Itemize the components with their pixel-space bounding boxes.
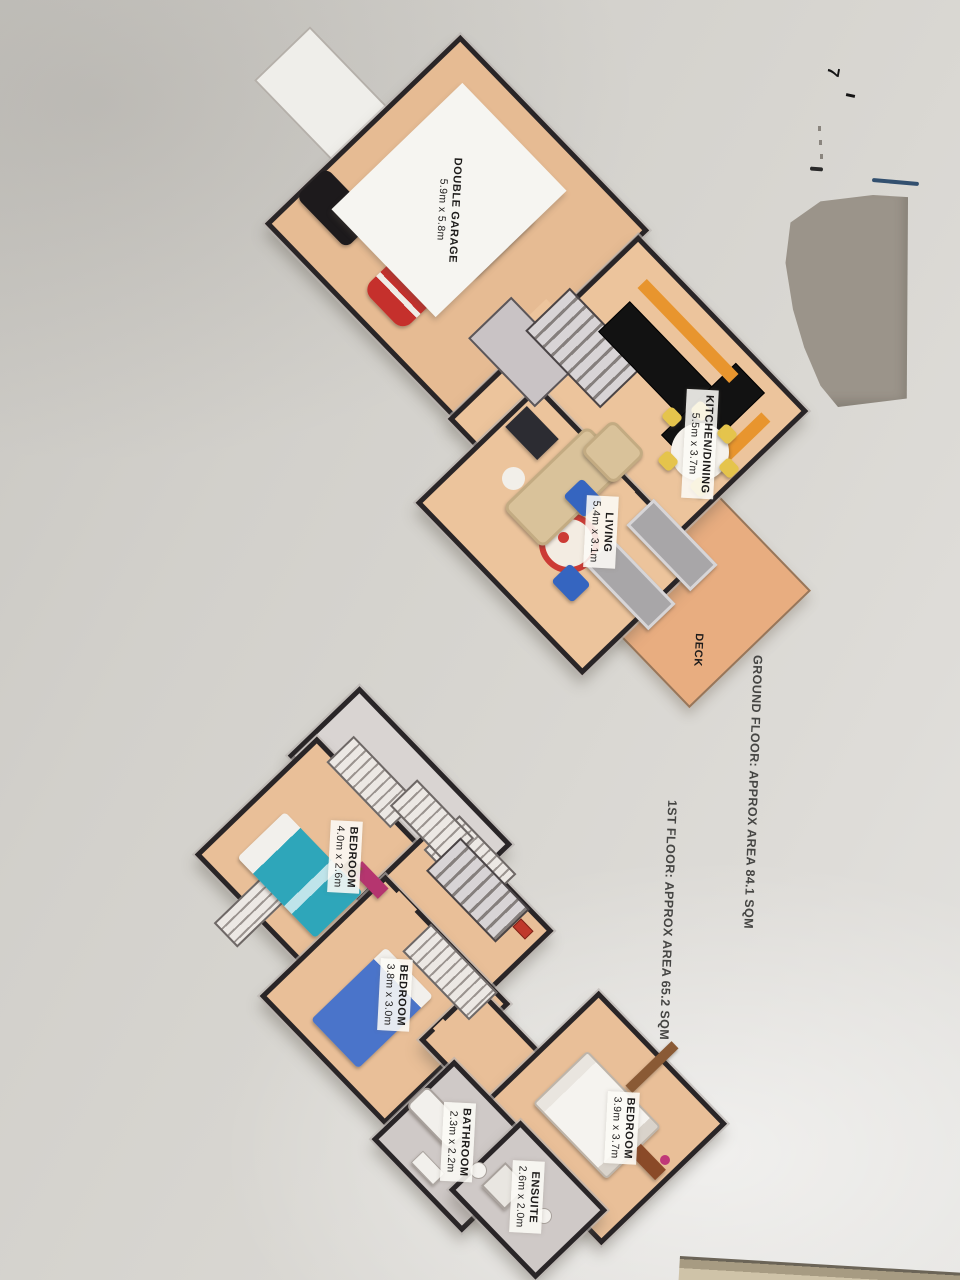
side-table <box>502 467 525 490</box>
pen-dash <box>846 93 855 98</box>
rug-center-dot <box>558 532 569 543</box>
room-label-double-garage: DOUBLE GARAGE 5.9m x 5.8m <box>429 151 467 268</box>
room-label-kitchen-dining: KITCHEN/DINING 5.5m x 3.7m <box>681 389 719 499</box>
room-label-living: LIVING 5.4m x 3.1m <box>583 495 619 569</box>
first-floor-caption: 1ST FLOOR: APPROX AREA 65.2 SQM <box>657 800 679 1041</box>
room-label-bedroom3: BEDROOM 3.9m x 3.7m <box>604 1091 640 1165</box>
room-label-bedroom2: BEDROOM 3.8m x 3.0m <box>377 958 413 1032</box>
magenta-cushion <box>660 1155 670 1165</box>
ground-floor-caption: GROUND FLOOR: APPROX AREA 84.1 SQM <box>741 655 765 929</box>
photographed-floor-plan-page: DOUBLE GARAGE 5.9m x 5.8m KITCHEN/DINING… <box>0 0 960 1280</box>
blue-pen-line <box>872 178 919 186</box>
pen-dash-dark <box>810 167 823 172</box>
room-label-deck: DECK <box>688 628 709 672</box>
room-label-ensuite: ENSUITE 2.6m x 2.0m <box>509 1160 545 1234</box>
redaction-block <box>783 195 908 407</box>
room-label-bathroom: BATHROOM 2.3m x 2.2m <box>440 1102 476 1182</box>
pen-tick <box>818 126 821 131</box>
table-surface-edge <box>678 1256 960 1280</box>
handwritten-mark: 7 <box>822 66 843 79</box>
pen-tick <box>820 154 823 159</box>
pen-tick <box>819 140 822 145</box>
room-label-bedroom1: BEDROOM 4.0m x 2.6m <box>327 820 363 894</box>
